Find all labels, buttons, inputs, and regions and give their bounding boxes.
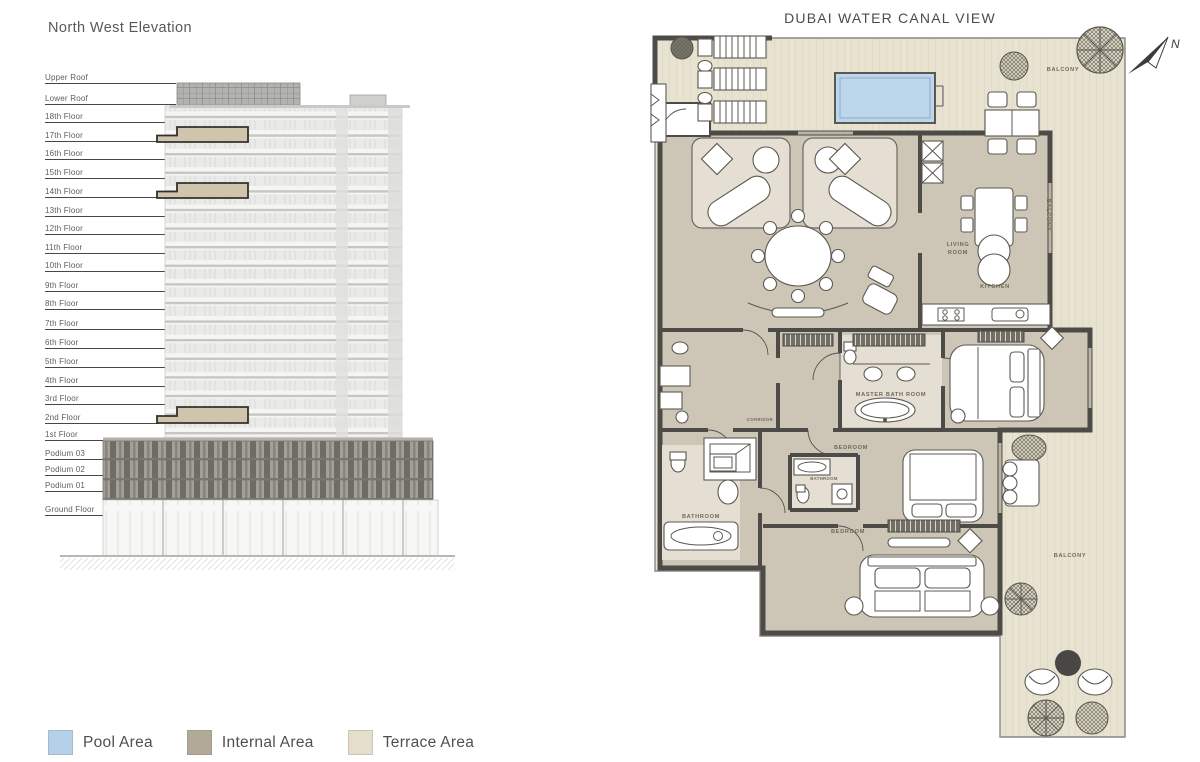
balcony-seat-group xyxy=(1003,460,1039,506)
building-elevation-drawing xyxy=(40,60,470,570)
bedroom-bottom-label: BEDROOM xyxy=(831,529,865,535)
legend-item-terrace: Terrace Area xyxy=(348,730,474,755)
north-label: N xyxy=(1171,37,1180,51)
terrace-area-swatch xyxy=(348,730,373,755)
wardrobe-strip-4 xyxy=(888,520,960,532)
legend-item-pool: Pool Area xyxy=(48,730,153,755)
balcony-top-label: BALCONY xyxy=(1047,67,1080,73)
internal-area-label: Internal Area xyxy=(222,734,314,752)
bottom-bed xyxy=(845,555,999,617)
legend: Pool Area Internal Area Terrace Area xyxy=(48,730,474,755)
bedroom-mid-label: BEDROOM xyxy=(834,445,868,451)
balcony-plant-4 xyxy=(1076,702,1108,734)
legend-item-internal: Internal Area xyxy=(187,730,314,755)
elevation-title: North West Elevation xyxy=(48,20,192,36)
kitchen-counter xyxy=(922,304,1050,325)
floor-plan-drawing: BALCONY N LIVING ROOM xyxy=(648,8,1196,756)
tower-facade xyxy=(165,106,402,441)
internal-area-swatch xyxy=(187,730,212,755)
pool-area-swatch xyxy=(48,730,73,755)
wardrobe-strip-1 xyxy=(853,334,925,346)
balcony-side-label: BALCONY xyxy=(1045,199,1051,232)
balcony-plant-3 xyxy=(1028,700,1064,736)
sun-loungers xyxy=(698,36,766,123)
wardrobe-strip-2 xyxy=(783,334,833,346)
tower-core-strip xyxy=(336,106,348,441)
kitchen-label: KITCHEN xyxy=(980,284,1010,290)
bedroom-bench xyxy=(888,538,950,547)
balcony-table xyxy=(1055,650,1081,676)
terrace-plant-small xyxy=(671,37,693,59)
balcony-bottom-label: BALCONY xyxy=(1054,553,1087,559)
north-arrow: N xyxy=(1128,37,1180,74)
bathroom-mid-label: BATHROOM xyxy=(810,476,838,481)
ground-hatch xyxy=(60,558,455,570)
pool-area-label: Pool Area xyxy=(83,734,153,752)
planter-left xyxy=(651,84,666,142)
corridor-label: CORRIDOR xyxy=(747,417,773,422)
living-room-label-2: ROOM xyxy=(948,250,968,256)
bathroom-left-label: BATHROOM xyxy=(682,514,720,520)
mid-bed xyxy=(903,450,983,522)
master-bed xyxy=(950,345,1044,423)
living-room-label-1: LIVING xyxy=(947,242,970,248)
master-bathroom-label: MASTER BATH ROOM xyxy=(856,392,926,398)
podium-facade xyxy=(103,441,433,500)
terrace-area-label: Terrace Area xyxy=(383,734,474,752)
balcony-plant-1 xyxy=(1012,435,1046,461)
ground-floor-storefront xyxy=(103,500,438,556)
wardrobe-strip-3 xyxy=(978,331,1024,342)
balcony-plant-2 xyxy=(1005,583,1037,615)
tower-edge-strip xyxy=(388,106,402,441)
upper-roof-plant xyxy=(177,83,300,106)
corner-plant-large xyxy=(1077,27,1123,73)
terrace-plant-round xyxy=(1000,52,1028,80)
roof-box xyxy=(350,95,386,106)
swimming-pool xyxy=(835,73,943,123)
